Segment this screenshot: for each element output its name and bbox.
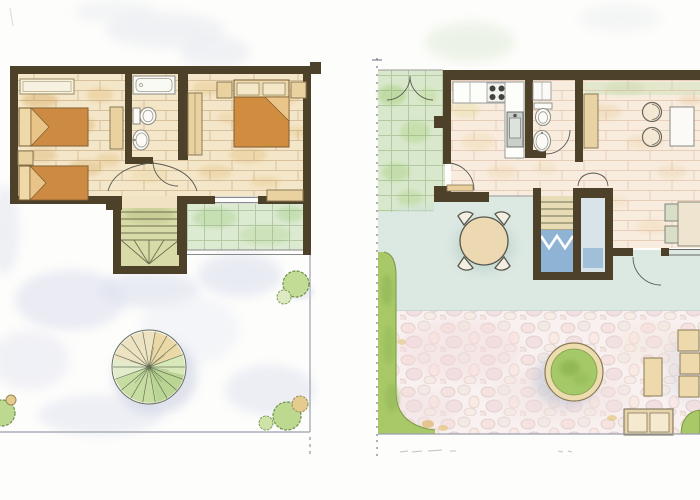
floor-plan-svg: Watercolor floor plans of a two-storey h… (0, 0, 700, 500)
nightstand (291, 82, 306, 98)
nightstand (217, 82, 232, 98)
floor-plan-image: Watercolor floor plans of a two-storey h… (0, 0, 700, 500)
coffee-table (670, 107, 694, 146)
single-bed (19, 108, 88, 146)
door-leaf (447, 185, 473, 191)
cabinet (110, 107, 123, 149)
chair (665, 226, 678, 243)
dining-table (678, 202, 700, 246)
lounger (680, 353, 700, 374)
chair (665, 204, 678, 221)
double-bed (234, 80, 289, 147)
washbasin (534, 131, 551, 152)
sideboard (584, 94, 598, 148)
armchair (643, 103, 662, 122)
armchair (643, 128, 662, 147)
kitchen-sink (507, 112, 523, 147)
lounger (679, 376, 699, 397)
single-bed (19, 166, 88, 200)
washbasin (133, 130, 149, 150)
patio-dining-set (454, 212, 514, 272)
garden-bench (624, 409, 673, 435)
staircase-upper (121, 205, 179, 266)
nightstand (18, 151, 33, 165)
stove (487, 83, 507, 102)
toilet (133, 108, 156, 125)
round-table (460, 217, 508, 265)
ground-floor-plan (372, 58, 700, 456)
bench (267, 190, 303, 201)
lounger (678, 330, 699, 351)
balcony (185, 204, 304, 255)
ground-bathroom-fixtures (533, 82, 552, 152)
side-table (644, 358, 662, 396)
toilet (534, 103, 552, 126)
